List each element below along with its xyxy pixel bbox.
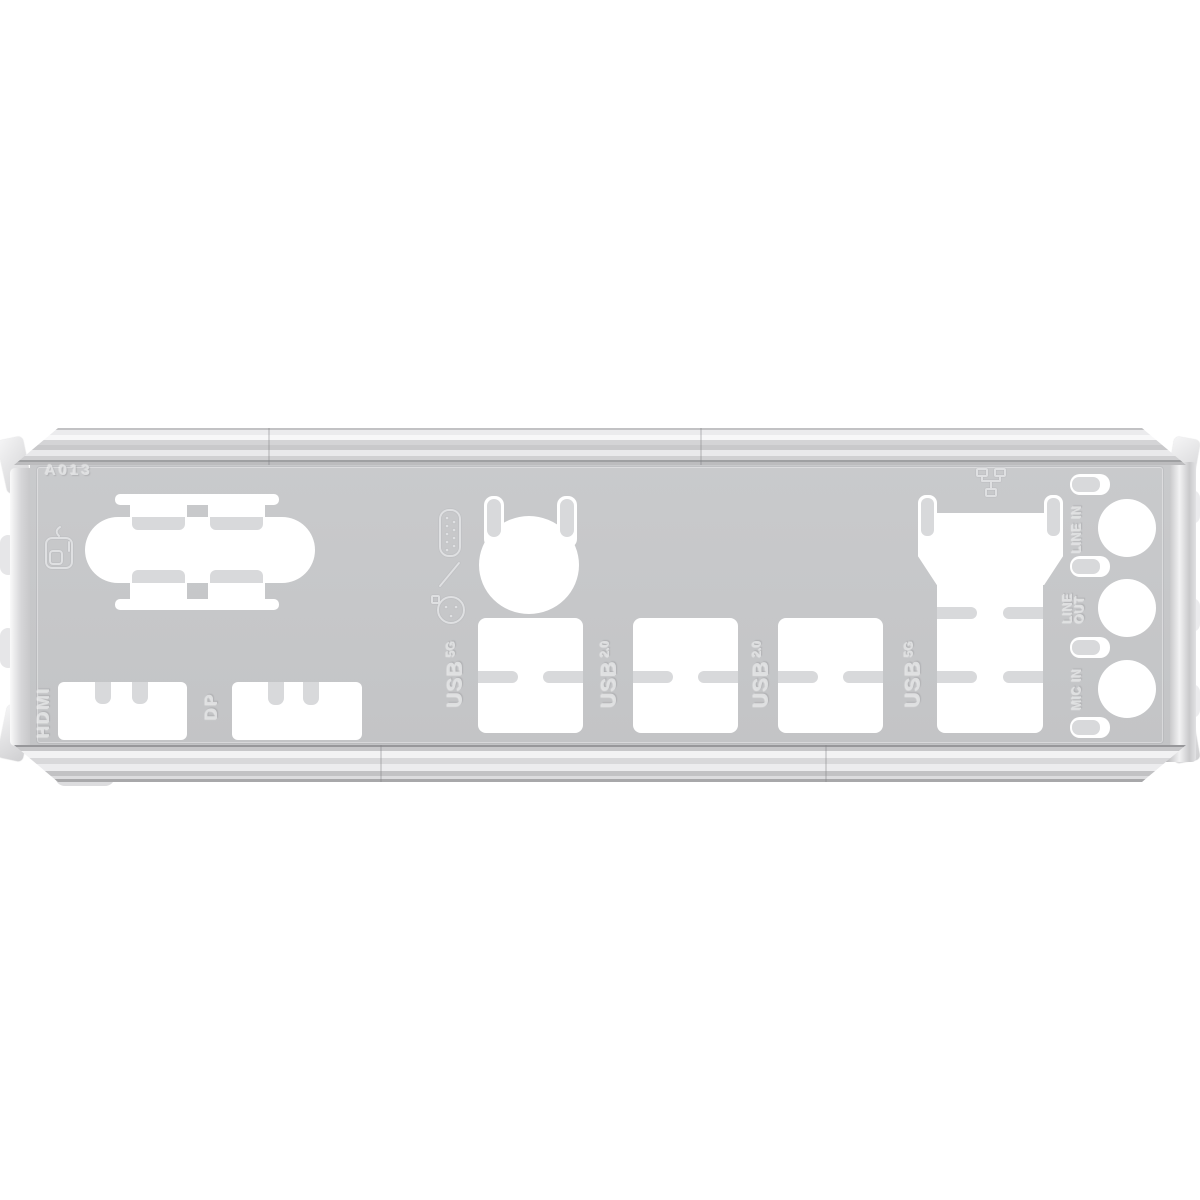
part-stamp: A013: [45, 462, 93, 479]
line-out-label: LINEOUT: [1062, 593, 1086, 623]
right-folded-edge: [1166, 462, 1196, 762]
product-photo: A013: [0, 0, 1200, 1200]
lan-icon: [974, 466, 1008, 505]
line-in-label: LINE IN: [1071, 505, 1083, 553]
hdmi-label: HDMI: [34, 686, 54, 737]
line-out-jack-cutout: [1098, 579, 1156, 637]
com-port-icon: [428, 508, 472, 635]
rail-seam: [380, 745, 382, 782]
rail-seam: [700, 428, 702, 465]
usb-5g-label: USB5G: [444, 641, 468, 707]
bottom-mounting-rail: [14, 745, 1186, 782]
line-in-jack-cutout: [1098, 499, 1156, 557]
top-mounting-rail: [14, 428, 1186, 465]
usb-2-0-label: USB2.0: [598, 640, 622, 707]
usb-5g-label: USB5G: [902, 641, 926, 707]
mic-in-jack-cutout: [1098, 660, 1156, 718]
rail-seam: [268, 428, 270, 465]
mic-in-label: MIC IN: [1071, 668, 1083, 710]
rail-seam: [825, 745, 827, 782]
usb-2-0-label: USB2.0: [750, 640, 774, 707]
ps2-keyboard-mouse-icon: [40, 524, 80, 577]
displayport-label: DP: [202, 692, 222, 720]
left-folded-edge: [10, 468, 30, 746]
slash-icon: [440, 563, 459, 586]
